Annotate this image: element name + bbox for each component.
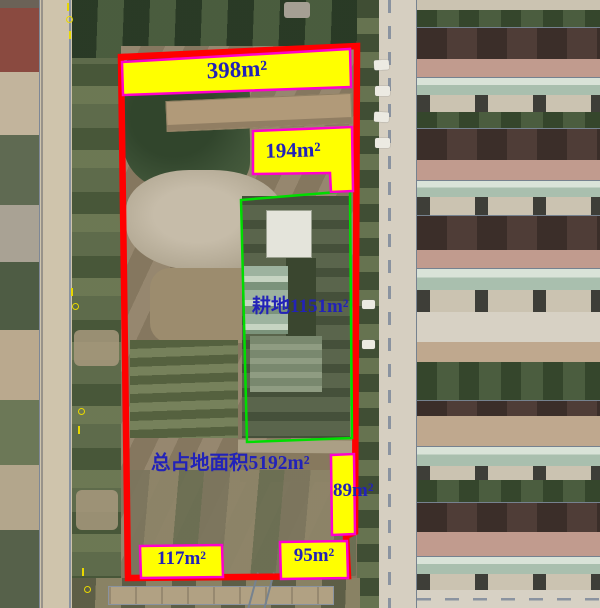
annotation-labels: 398m² 194m² 耕地1151m² 总占地面积5192m² 89m² 11… [0, 0, 600, 608]
label-east-strip-area: 89m² [333, 480, 374, 502]
label-southwest-area: 117m² [141, 548, 222, 570]
label-total-site-area: 总占地面积5192m² [151, 453, 310, 475]
label-southeast-area: 95m² [281, 545, 347, 567]
label-north-strip-area: 398m² [126, 52, 349, 88]
aerial-map: 398m² 194m² 耕地1151m² 总占地面积5192m² 89m² 11… [0, 0, 600, 608]
label-inner-strip-area: 194m² [252, 137, 335, 163]
label-farmland-area: 耕地1151m² [252, 296, 348, 318]
